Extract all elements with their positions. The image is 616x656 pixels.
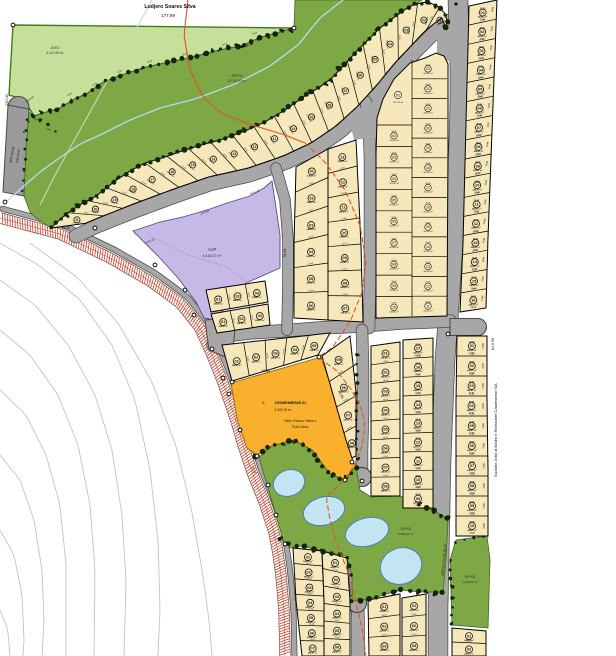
svg-text:260,40 m²: 260,40 m² <box>423 92 433 95</box>
svg-text:13,43: 13,43 <box>476 133 482 136</box>
svg-text:243,86 m²: 243,86 m² <box>389 139 399 142</box>
svg-text:6.088,41 m²: 6.088,41 m² <box>398 532 414 536</box>
svg-text:248,47 m²: 248,47 m² <box>464 639 474 642</box>
svg-text:20,00: 20,00 <box>415 400 421 402</box>
svg-text:APP03: APP03 <box>231 74 242 78</box>
svg-text:20,00: 20,00 <box>425 262 431 264</box>
svg-text:248,47 m²: 248,47 m² <box>218 325 228 328</box>
svg-text:248,47 m²: 248,47 m² <box>381 433 391 436</box>
svg-text:10: 10 <box>416 477 420 482</box>
svg-text:20,00: 20,00 <box>478 85 484 87</box>
svg-text:248,47 m²: 248,47 m² <box>381 395 391 398</box>
svg-text:260,40 m²: 260,40 m² <box>423 112 433 115</box>
svg-text:248,47 m²: 248,47 m² <box>474 150 484 153</box>
svg-text:AUP: AUP <box>208 247 217 252</box>
svg-text:62,60: 62,60 <box>262 369 271 373</box>
svg-text:Euclidio João di Bodra e Rebra: Euclidio João di Bodra e Rebradore Catar… <box>493 383 498 477</box>
svg-text:248,47 m²: 248,47 m² <box>469 284 479 287</box>
svg-text:248,47 m²: 248,47 m² <box>409 629 419 632</box>
svg-text:07: 07 <box>310 646 314 651</box>
svg-text:248,47 m²: 248,47 m² <box>305 606 315 609</box>
svg-text:20,00: 20,00 <box>469 502 475 504</box>
svg-text:248,47 m²: 248,47 m² <box>381 414 391 417</box>
svg-text:13,43: 13,43 <box>471 306 477 309</box>
svg-text:248,47 m²: 248,47 m² <box>331 583 341 586</box>
svg-text:20,00: 20,00 <box>391 131 397 133</box>
svg-text:248,47 m²: 248,47 m² <box>306 282 316 285</box>
svg-text:08: 08 <box>392 263 396 267</box>
svg-text:10: 10 <box>470 523 474 528</box>
svg-text:3.436,76 m²: 3.436,76 m² <box>274 408 291 412</box>
svg-text:248,47 m²: 248,47 m² <box>477 35 487 38</box>
svg-text:120,41: 120,41 <box>4 93 9 106</box>
svg-text:1.208,06 m²: 1.208,06 m² <box>462 580 478 584</box>
svg-text:20,00: 20,00 <box>475 181 481 183</box>
svg-text:177,99: 177,99 <box>161 13 175 18</box>
svg-text:248,47 m²: 248,47 m² <box>413 464 423 467</box>
svg-text:13,43: 13,43 <box>415 485 421 488</box>
svg-text:20,00: 20,00 <box>425 124 431 126</box>
svg-text:07: 07 <box>346 413 350 418</box>
svg-text:243,86 m²: 243,86 m² <box>389 268 399 271</box>
svg-text:04: 04 <box>388 42 392 46</box>
svg-text:248,47 m²: 248,47 m² <box>464 652 474 655</box>
svg-text:03: 03 <box>392 155 396 159</box>
svg-text:20,00: 20,00 <box>391 217 397 219</box>
svg-text:248,47 m²: 248,47 m² <box>332 617 342 620</box>
svg-text:248,47 m²: 248,47 m² <box>306 621 316 624</box>
svg-text:248,47 m²: 248,47 m² <box>304 575 314 578</box>
svg-text:260,40 m²: 260,40 m² <box>423 191 433 194</box>
svg-text:260,40 m²: 260,40 m² <box>423 250 433 253</box>
svg-text:248,47 m²: 248,47 m² <box>467 409 477 412</box>
svg-text:07: 07 <box>470 463 474 468</box>
svg-text:13,43: 13,43 <box>469 512 475 515</box>
svg-text:20,00: 20,00 <box>469 382 475 384</box>
svg-text:13,43: 13,43 <box>472 268 478 271</box>
svg-text:248,47 m²: 248,47 m² <box>332 600 342 603</box>
svg-text:12: 12 <box>426 285 430 289</box>
svg-text:20,00: 20,00 <box>477 104 483 106</box>
svg-text:245,81 m²: 245,81 m² <box>72 221 81 224</box>
svg-text:20,00: 20,00 <box>469 462 475 464</box>
svg-text:248,47 m²: 248,47 m² <box>306 255 316 258</box>
svg-text:20,00: 20,00 <box>471 277 477 279</box>
svg-text:20,00: 20,00 <box>391 238 397 240</box>
svg-text:20,00: 20,00 <box>469 402 475 404</box>
svg-text:16: 16 <box>426 206 430 210</box>
svg-text:10: 10 <box>475 183 479 188</box>
svg-text:248,47 m²: 248,47 m² <box>334 363 344 366</box>
svg-text:260,40 m²: 260,40 m² <box>423 131 433 134</box>
svg-text:13,43: 13,43 <box>469 452 475 455</box>
svg-text:248,47 m²: 248,47 m² <box>467 469 477 472</box>
svg-text:10: 10 <box>342 230 346 235</box>
svg-text:248,47 m²: 248,47 m² <box>338 160 348 163</box>
svg-text:20,00: 20,00 <box>415 419 421 421</box>
svg-text:07: 07 <box>477 125 481 130</box>
svg-text:20,00: 20,00 <box>425 302 431 304</box>
svg-text:17: 17 <box>416 346 420 351</box>
svg-text:20,00: 20,00 <box>425 242 431 244</box>
svg-text:248,47 m²: 248,47 m² <box>306 228 316 231</box>
svg-text:245,81 m²: 245,81 m² <box>408 25 411 34</box>
svg-text:13,43: 13,43 <box>469 492 475 495</box>
svg-text:243,86 m²: 243,86 m² <box>389 289 399 292</box>
svg-text:248,47 m²: 248,47 m² <box>307 636 317 639</box>
svg-text:248,47 m²: 248,47 m² <box>330 566 340 569</box>
svg-text:20,00: 20,00 <box>476 123 482 125</box>
svg-text:54,94: 54,94 <box>283 249 287 258</box>
svg-text:13,43: 13,43 <box>469 392 475 395</box>
svg-text:20,00: 20,00 <box>391 196 397 198</box>
svg-text:20,00: 20,00 <box>469 522 475 524</box>
svg-text:20,00: 20,00 <box>469 442 475 444</box>
svg-text:248,47 m²: 248,47 m² <box>471 246 481 249</box>
svg-text:20,00: 20,00 <box>391 174 397 176</box>
svg-text:20,00: 20,00 <box>391 260 397 262</box>
svg-text:248,47 m²: 248,47 m² <box>381 452 391 455</box>
svg-text:07: 07 <box>383 465 387 470</box>
svg-text:20,00: 20,00 <box>391 153 397 155</box>
svg-text:248,47 m²: 248,47 m² <box>467 449 477 452</box>
svg-text:260,40 m²: 260,40 m² <box>423 151 433 154</box>
svg-text:20,00: 20,00 <box>425 222 431 224</box>
svg-text:21: 21 <box>426 107 430 111</box>
svg-text:20,00: 20,00 <box>469 482 475 484</box>
svg-text:13,43: 13,43 <box>469 532 475 535</box>
svg-text:20,00: 20,00 <box>425 163 431 165</box>
svg-text:248,47 m²: 248,47 m² <box>469 303 479 306</box>
svg-text:248,47 m²: 248,47 m² <box>476 73 486 76</box>
svg-text:13,43: 13,43 <box>415 467 421 470</box>
svg-text:243,86 m²: 243,86 m² <box>389 246 399 249</box>
svg-text:20,00: 20,00 <box>415 457 421 459</box>
svg-text:248,47 m²: 248,47 m² <box>470 265 480 268</box>
svg-text:13,43: 13,43 <box>415 354 421 357</box>
svg-text:4.418,07 m²: 4.418,07 m² <box>202 254 222 258</box>
svg-text:20,00: 20,00 <box>425 104 431 106</box>
svg-text:20,00: 20,00 <box>415 363 421 365</box>
svg-text:01: 01 <box>396 94 400 98</box>
svg-text:248,47 m²: 248,47 m² <box>252 296 262 299</box>
svg-text:248,47 m²: 248,47 m² <box>381 376 391 379</box>
svg-text:Tirza Vieira: Tirza Vieira <box>292 425 309 429</box>
svg-text:13,43: 13,43 <box>415 373 421 376</box>
svg-text:260,40 m²: 260,40 m² <box>423 72 433 75</box>
svg-text:248,47 m²: 248,47 m² <box>381 490 391 493</box>
svg-text:13,43: 13,43 <box>471 287 477 290</box>
svg-text:20,00: 20,00 <box>479 27 485 29</box>
svg-text:20,00: 20,00 <box>475 162 481 164</box>
svg-text:248,47 m²: 248,47 m² <box>413 370 423 373</box>
svg-text:13,43: 13,43 <box>475 172 481 175</box>
svg-text:13,43: 13,43 <box>479 57 485 60</box>
svg-text:248,47 m²: 248,47 m² <box>467 529 477 532</box>
svg-text:04: 04 <box>392 177 396 181</box>
svg-text:20,00: 20,00 <box>479 47 485 49</box>
svg-text:248,47 m²: 248,47 m² <box>472 208 482 211</box>
svg-text:248,47 m²: 248,47 m² <box>308 651 318 654</box>
svg-text:248,47 m²: 248,47 m² <box>475 92 485 95</box>
svg-text:14: 14 <box>426 245 430 249</box>
svg-text:06: 06 <box>392 220 396 224</box>
svg-text:248,47 m²: 248,47 m² <box>339 211 349 214</box>
svg-text:20,00: 20,00 <box>415 344 421 346</box>
svg-text:20,00: 20,00 <box>469 342 475 344</box>
svg-text:248,47 m²: 248,47 m² <box>413 351 423 354</box>
svg-text:02: 02 <box>392 134 396 138</box>
svg-text:13,43: 13,43 <box>415 410 421 413</box>
svg-text:260,40 m²: 260,40 m² <box>423 230 433 233</box>
svg-text:13,43: 13,43 <box>469 472 475 475</box>
svg-text:248,47 m²: 248,47 m² <box>343 418 353 421</box>
svg-text:17: 17 <box>426 186 430 190</box>
svg-text:248,47 m²: 248,47 m² <box>478 16 488 19</box>
svg-text:20,00: 20,00 <box>472 258 478 260</box>
svg-text:248,47 m²: 248,47 m² <box>307 174 317 177</box>
svg-text:06: 06 <box>358 73 362 77</box>
svg-text:23: 23 <box>426 67 430 71</box>
svg-text:20,00: 20,00 <box>425 143 431 145</box>
svg-text:243,86 m²: 243,86 m² <box>389 160 399 163</box>
svg-text:13,43: 13,43 <box>475 191 481 194</box>
svg-text:13,43: 13,43 <box>415 448 421 451</box>
svg-text:4.447,66 m²: 4.447,66 m² <box>46 51 63 55</box>
svg-text:248,47 m²: 248,47 m² <box>303 560 313 563</box>
svg-text:248,47 m²: 248,47 m² <box>467 429 477 432</box>
svg-text:20,00: 20,00 <box>425 282 431 284</box>
svg-text:13: 13 <box>426 265 430 269</box>
svg-text:AVE2: AVE2 <box>51 46 60 50</box>
svg-text:248,47 m²: 248,47 m² <box>251 360 261 363</box>
svg-text:20,00: 20,00 <box>425 183 431 185</box>
svg-text:248,47 m²: 248,47 m² <box>305 591 315 594</box>
svg-text:248,47 m²: 248,47 m² <box>381 471 391 474</box>
svg-text:22: 22 <box>426 87 430 91</box>
svg-text:05: 05 <box>373 58 377 62</box>
svg-text:20,00: 20,00 <box>415 475 421 477</box>
svg-text:13,43: 13,43 <box>415 392 421 395</box>
svg-text:84,0 56: 84,0 56 <box>491 338 495 350</box>
svg-text:13,43: 13,43 <box>477 114 483 117</box>
svg-text:13,43: 13,43 <box>478 76 484 79</box>
svg-text:248,47 m²: 248,47 m² <box>290 353 300 356</box>
svg-text:248,47 m²: 248,47 m² <box>340 286 350 289</box>
svg-text:Ludjero Soares Silva: Ludjero Soares Silva <box>144 4 195 10</box>
svg-text:APP04: APP04 <box>401 527 412 531</box>
svg-text:20,00: 20,00 <box>415 438 421 440</box>
svg-text:248,47 m²: 248,47 m² <box>467 509 477 512</box>
svg-text:10: 10 <box>392 306 396 310</box>
svg-text:13,43: 13,43 <box>480 18 486 21</box>
svg-text:248,47 m²: 248,47 m² <box>347 446 357 449</box>
svg-text:13,43: 13,43 <box>479 37 485 40</box>
svg-text:56,55: 56,55 <box>62 226 71 230</box>
svg-text:15: 15 <box>426 225 430 229</box>
svg-text:13,43: 13,43 <box>469 372 475 375</box>
svg-text:248,47 m²: 248,47 m² <box>232 364 242 367</box>
svg-text:20,00: 20,00 <box>476 143 482 145</box>
svg-text:248,47 m²: 248,47 m² <box>340 261 350 264</box>
svg-text:09: 09 <box>392 284 396 288</box>
svg-text:20,00: 20,00 <box>471 296 477 298</box>
svg-text:248,47 m²: 248,47 m² <box>409 649 419 652</box>
svg-text:248,47 m²: 248,47 m² <box>467 349 477 352</box>
svg-text:248,47 m²: 248,47 m² <box>413 445 423 448</box>
svg-text:13,43: 13,43 <box>473 249 479 252</box>
svg-text:248,47 m²: 248,47 m² <box>213 302 223 305</box>
svg-text:157,63,43 m²: 157,63,43 m² <box>228 79 247 83</box>
svg-text:APP05: APP05 <box>465 575 476 579</box>
svg-text:248,47 m²: 248,47 m² <box>473 169 483 172</box>
svg-text:DESMEMBRAR 01: DESMEMBRAR 01 <box>275 401 306 405</box>
svg-text:20,00: 20,00 <box>391 281 397 283</box>
svg-text:248,47 m²: 248,47 m² <box>472 188 482 191</box>
svg-text:248,47 m²: 248,47 m² <box>467 489 477 492</box>
svg-text:248,47 m²: 248,47 m² <box>255 319 265 322</box>
svg-text:457,24 m²: 457,24 m² <box>393 101 403 104</box>
svg-text:20,00: 20,00 <box>478 66 484 68</box>
svg-text:248,47 m²: 248,47 m² <box>233 299 243 302</box>
svg-text:13,43: 13,43 <box>474 210 480 213</box>
svg-text:248,47 m²: 248,47 m² <box>471 227 481 230</box>
svg-text:20,00: 20,00 <box>415 494 421 496</box>
svg-text:Fabio Ramos Vieira e: Fabio Ramos Vieira e <box>284 419 317 423</box>
svg-text:248,47 m²: 248,47 m² <box>306 309 316 312</box>
svg-text:248,47 m²: 248,47 m² <box>381 357 391 360</box>
svg-text:A.: A. <box>262 401 265 405</box>
svg-text:20,00: 20,00 <box>469 362 475 364</box>
svg-text:20: 20 <box>426 126 430 130</box>
svg-text:03: 03 <box>404 28 408 32</box>
svg-text:243,86 m²: 243,86 m² <box>389 182 399 185</box>
svg-text:248,47 m²: 248,47 m² <box>379 610 389 613</box>
svg-text:20,00: 20,00 <box>391 303 397 305</box>
svg-text:248,47 m²: 248,47 m² <box>413 408 423 411</box>
svg-text:248,47 m²: 248,47 m² <box>332 634 342 637</box>
svg-text:248,47 m²: 248,47 m² <box>413 483 423 486</box>
svg-text:13,43: 13,43 <box>469 352 475 355</box>
svg-text:248,47 m²: 248,47 m² <box>380 649 390 652</box>
svg-text:13,43: 13,43 <box>476 153 482 156</box>
svg-text:20,00: 20,00 <box>474 200 480 202</box>
svg-text:248,47 m²: 248,47 m² <box>475 112 485 115</box>
svg-text:20,00: 20,00 <box>480 8 486 10</box>
svg-text:260,40 m²: 260,40 m² <box>423 211 433 214</box>
svg-text:248,47 m²: 248,47 m² <box>307 201 317 204</box>
svg-text:248,47 m²: 248,47 m² <box>413 389 423 392</box>
svg-text:248,47 m²: 248,47 m² <box>409 609 419 612</box>
svg-text:248,47 m²: 248,47 m² <box>271 357 281 360</box>
svg-text:13,43: 13,43 <box>469 412 475 415</box>
svg-text:248,47 m²: 248,47 m² <box>310 349 320 352</box>
svg-text:243,86 m²: 243,86 m² <box>389 311 399 314</box>
svg-text:248,47 m²: 248,47 m² <box>477 54 487 57</box>
svg-text:20,00: 20,00 <box>415 382 421 384</box>
svg-text:20,00: 20,00 <box>425 84 431 86</box>
svg-text:20,00: 20,00 <box>473 239 479 241</box>
svg-text:260,40 m²: 260,40 m² <box>423 171 433 174</box>
svg-text:11: 11 <box>426 304 430 308</box>
svg-text:20,00: 20,00 <box>425 64 431 66</box>
svg-text:13,43: 13,43 <box>473 229 479 232</box>
svg-text:248,47 m²: 248,47 m² <box>413 427 423 430</box>
svg-text:243,86 m²: 243,86 m² <box>389 225 399 228</box>
svg-text:13,43: 13,43 <box>469 432 475 435</box>
svg-text:20,00: 20,00 <box>469 422 475 424</box>
svg-text:260,40 m²: 260,40 m² <box>423 270 433 273</box>
svg-text:248,47 m²: 248,47 m² <box>332 651 342 654</box>
svg-text:18: 18 <box>426 166 430 170</box>
svg-text:248,47 m²: 248,47 m² <box>474 131 484 134</box>
svg-text:05: 05 <box>392 198 396 202</box>
svg-text:260,40 m²: 260,40 m² <box>423 290 433 293</box>
svg-text:248,47 m²: 248,47 m² <box>339 236 349 239</box>
svg-text:248,47 m²: 248,47 m² <box>379 630 389 633</box>
svg-text:13,43: 13,43 <box>478 95 484 98</box>
svg-text:07: 07 <box>392 241 396 245</box>
svg-text:07: 07 <box>343 306 347 311</box>
svg-text:260,40 m²: 260,40 m² <box>423 309 433 312</box>
svg-text:248,47 m²: 248,47 m² <box>467 389 477 392</box>
svg-text:13,43: 13,43 <box>415 429 421 432</box>
svg-text:20,00: 20,00 <box>425 203 431 205</box>
svg-text:19: 19 <box>426 146 430 150</box>
svg-text:248,47 m²: 248,47 m² <box>467 369 477 372</box>
svg-text:20,00: 20,00 <box>473 219 479 221</box>
svg-text:243,86 m²: 243,86 m² <box>389 203 399 206</box>
svg-text:248,47 m²: 248,47 m² <box>237 322 247 325</box>
svg-text:248,47 m²: 248,47 m² <box>341 311 351 314</box>
